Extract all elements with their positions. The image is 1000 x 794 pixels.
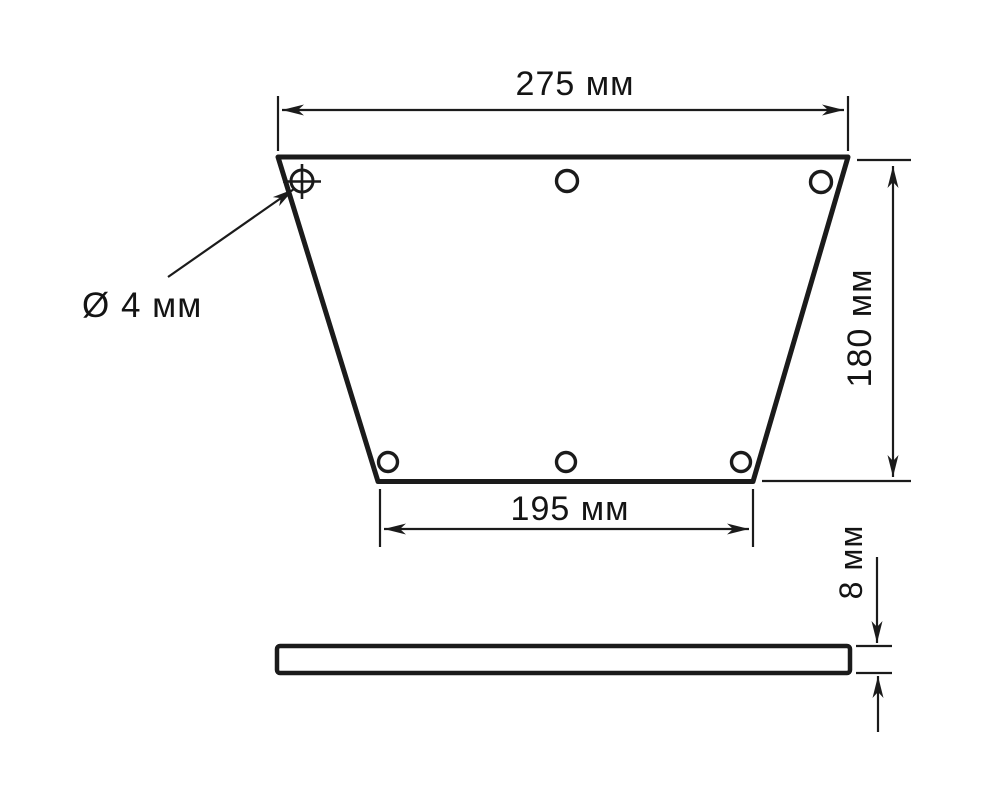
front-view [278, 157, 848, 482]
side-view [277, 646, 850, 673]
hole-diameter-label: Ø 4 мм [82, 286, 202, 325]
plate-outline [278, 157, 848, 482]
drawing-canvas: 275 мм 180 мм 195 мм Ø 4 мм [0, 0, 1000, 794]
top-width-label: 275 мм [516, 65, 635, 103]
top-width-dimension: 275 мм [278, 65, 848, 151]
plate-side-outline [277, 646, 850, 673]
thickness-dimension: 8 мм [833, 525, 892, 732]
bottom-width-dimension: 195 мм [380, 489, 753, 547]
height-label: 180 мм [841, 269, 879, 388]
thickness-label: 8 мм [833, 525, 869, 600]
hole-diameter-callout: Ø 4 мм [82, 189, 294, 325]
bottom-width-label: 195 мм [511, 490, 630, 528]
technical-drawing-page: 275 мм 180 мм 195 мм Ø 4 мм [0, 0, 1000, 794]
leader-line [168, 189, 294, 277]
